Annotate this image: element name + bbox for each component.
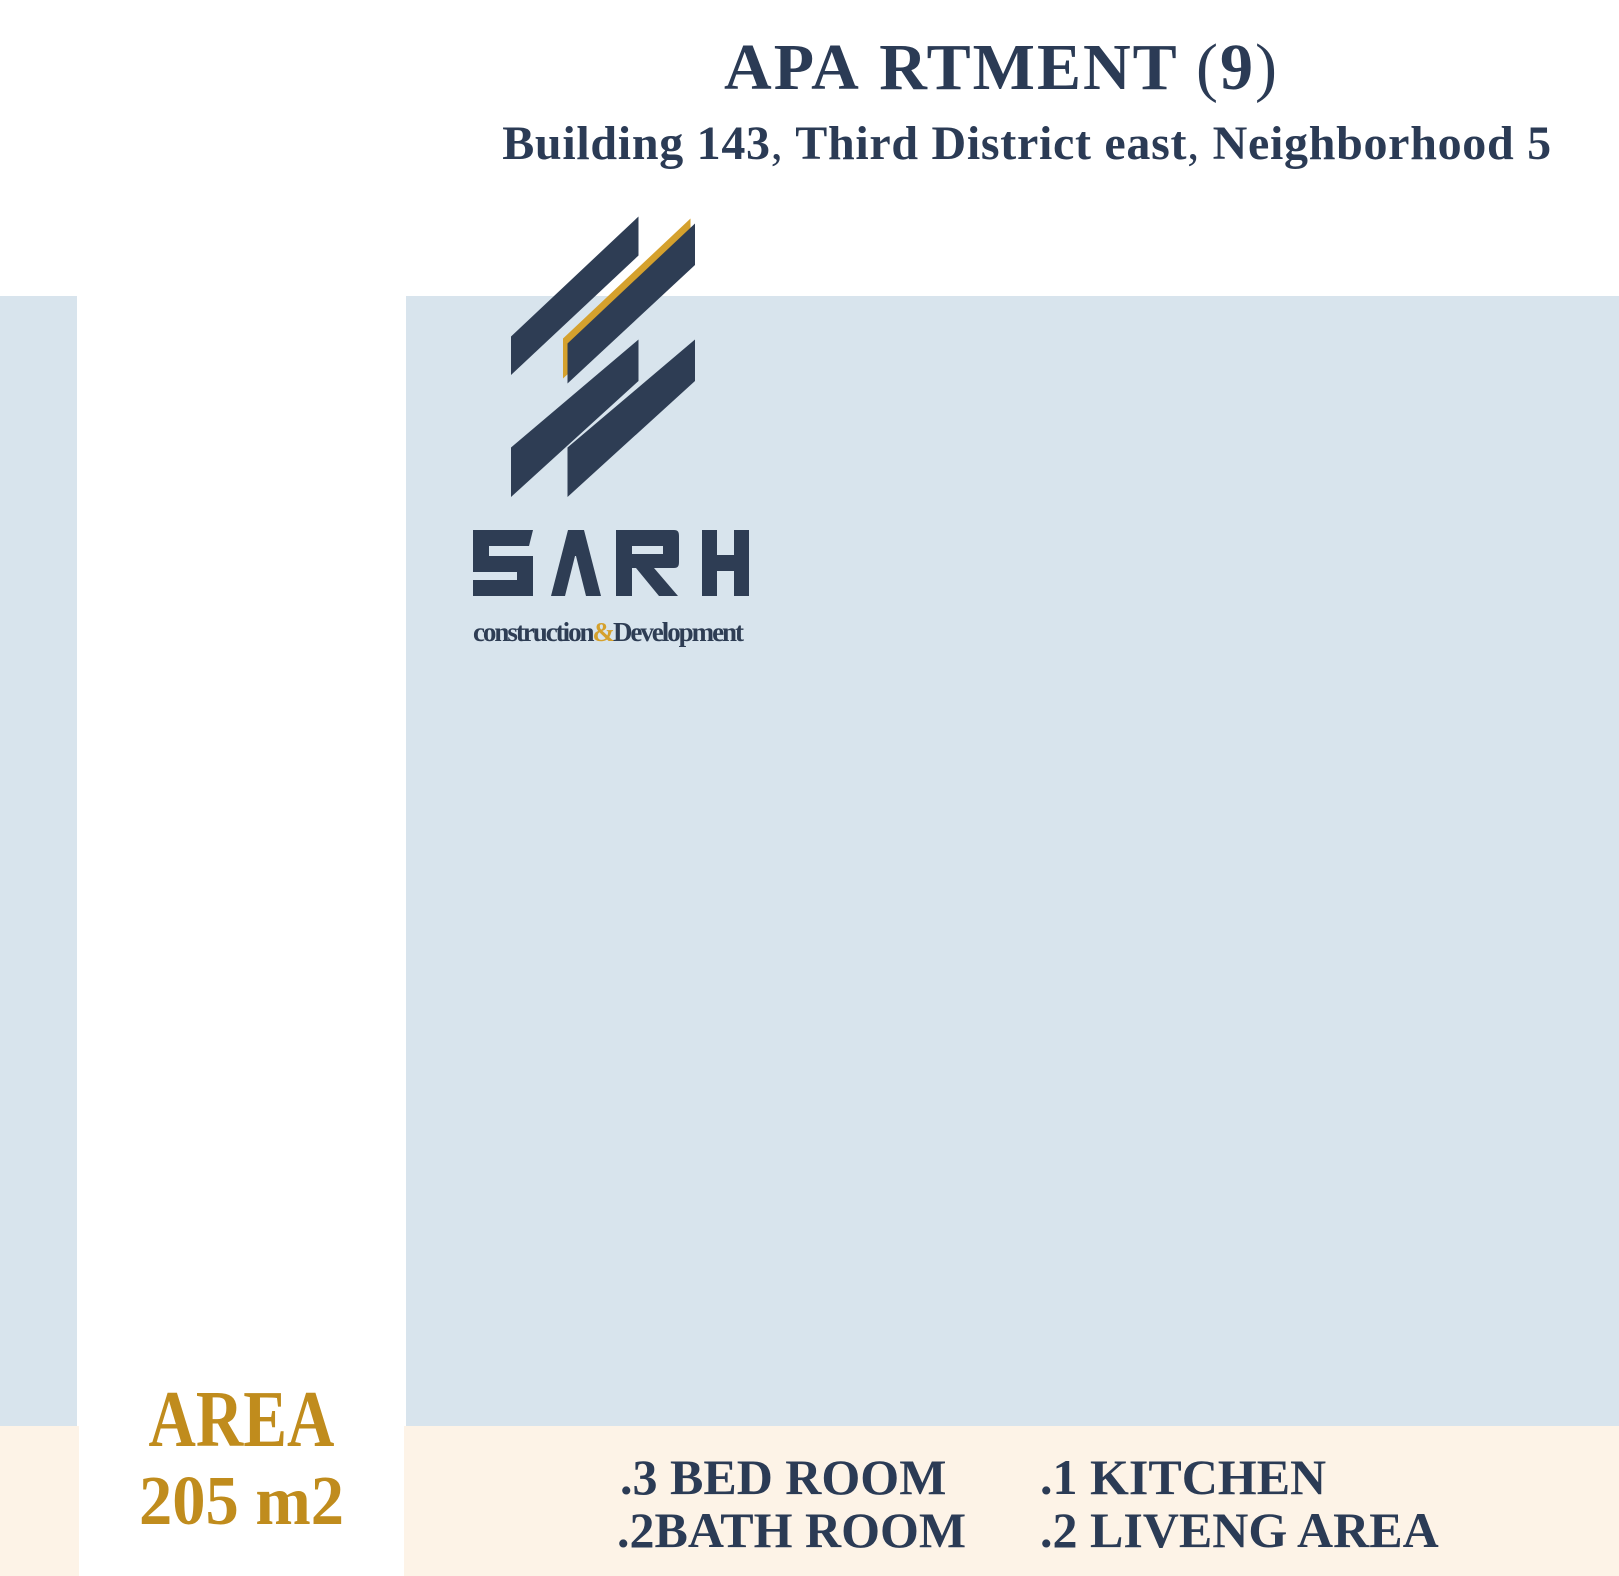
svg-text:construction&Development: construction&Development bbox=[473, 617, 744, 647]
